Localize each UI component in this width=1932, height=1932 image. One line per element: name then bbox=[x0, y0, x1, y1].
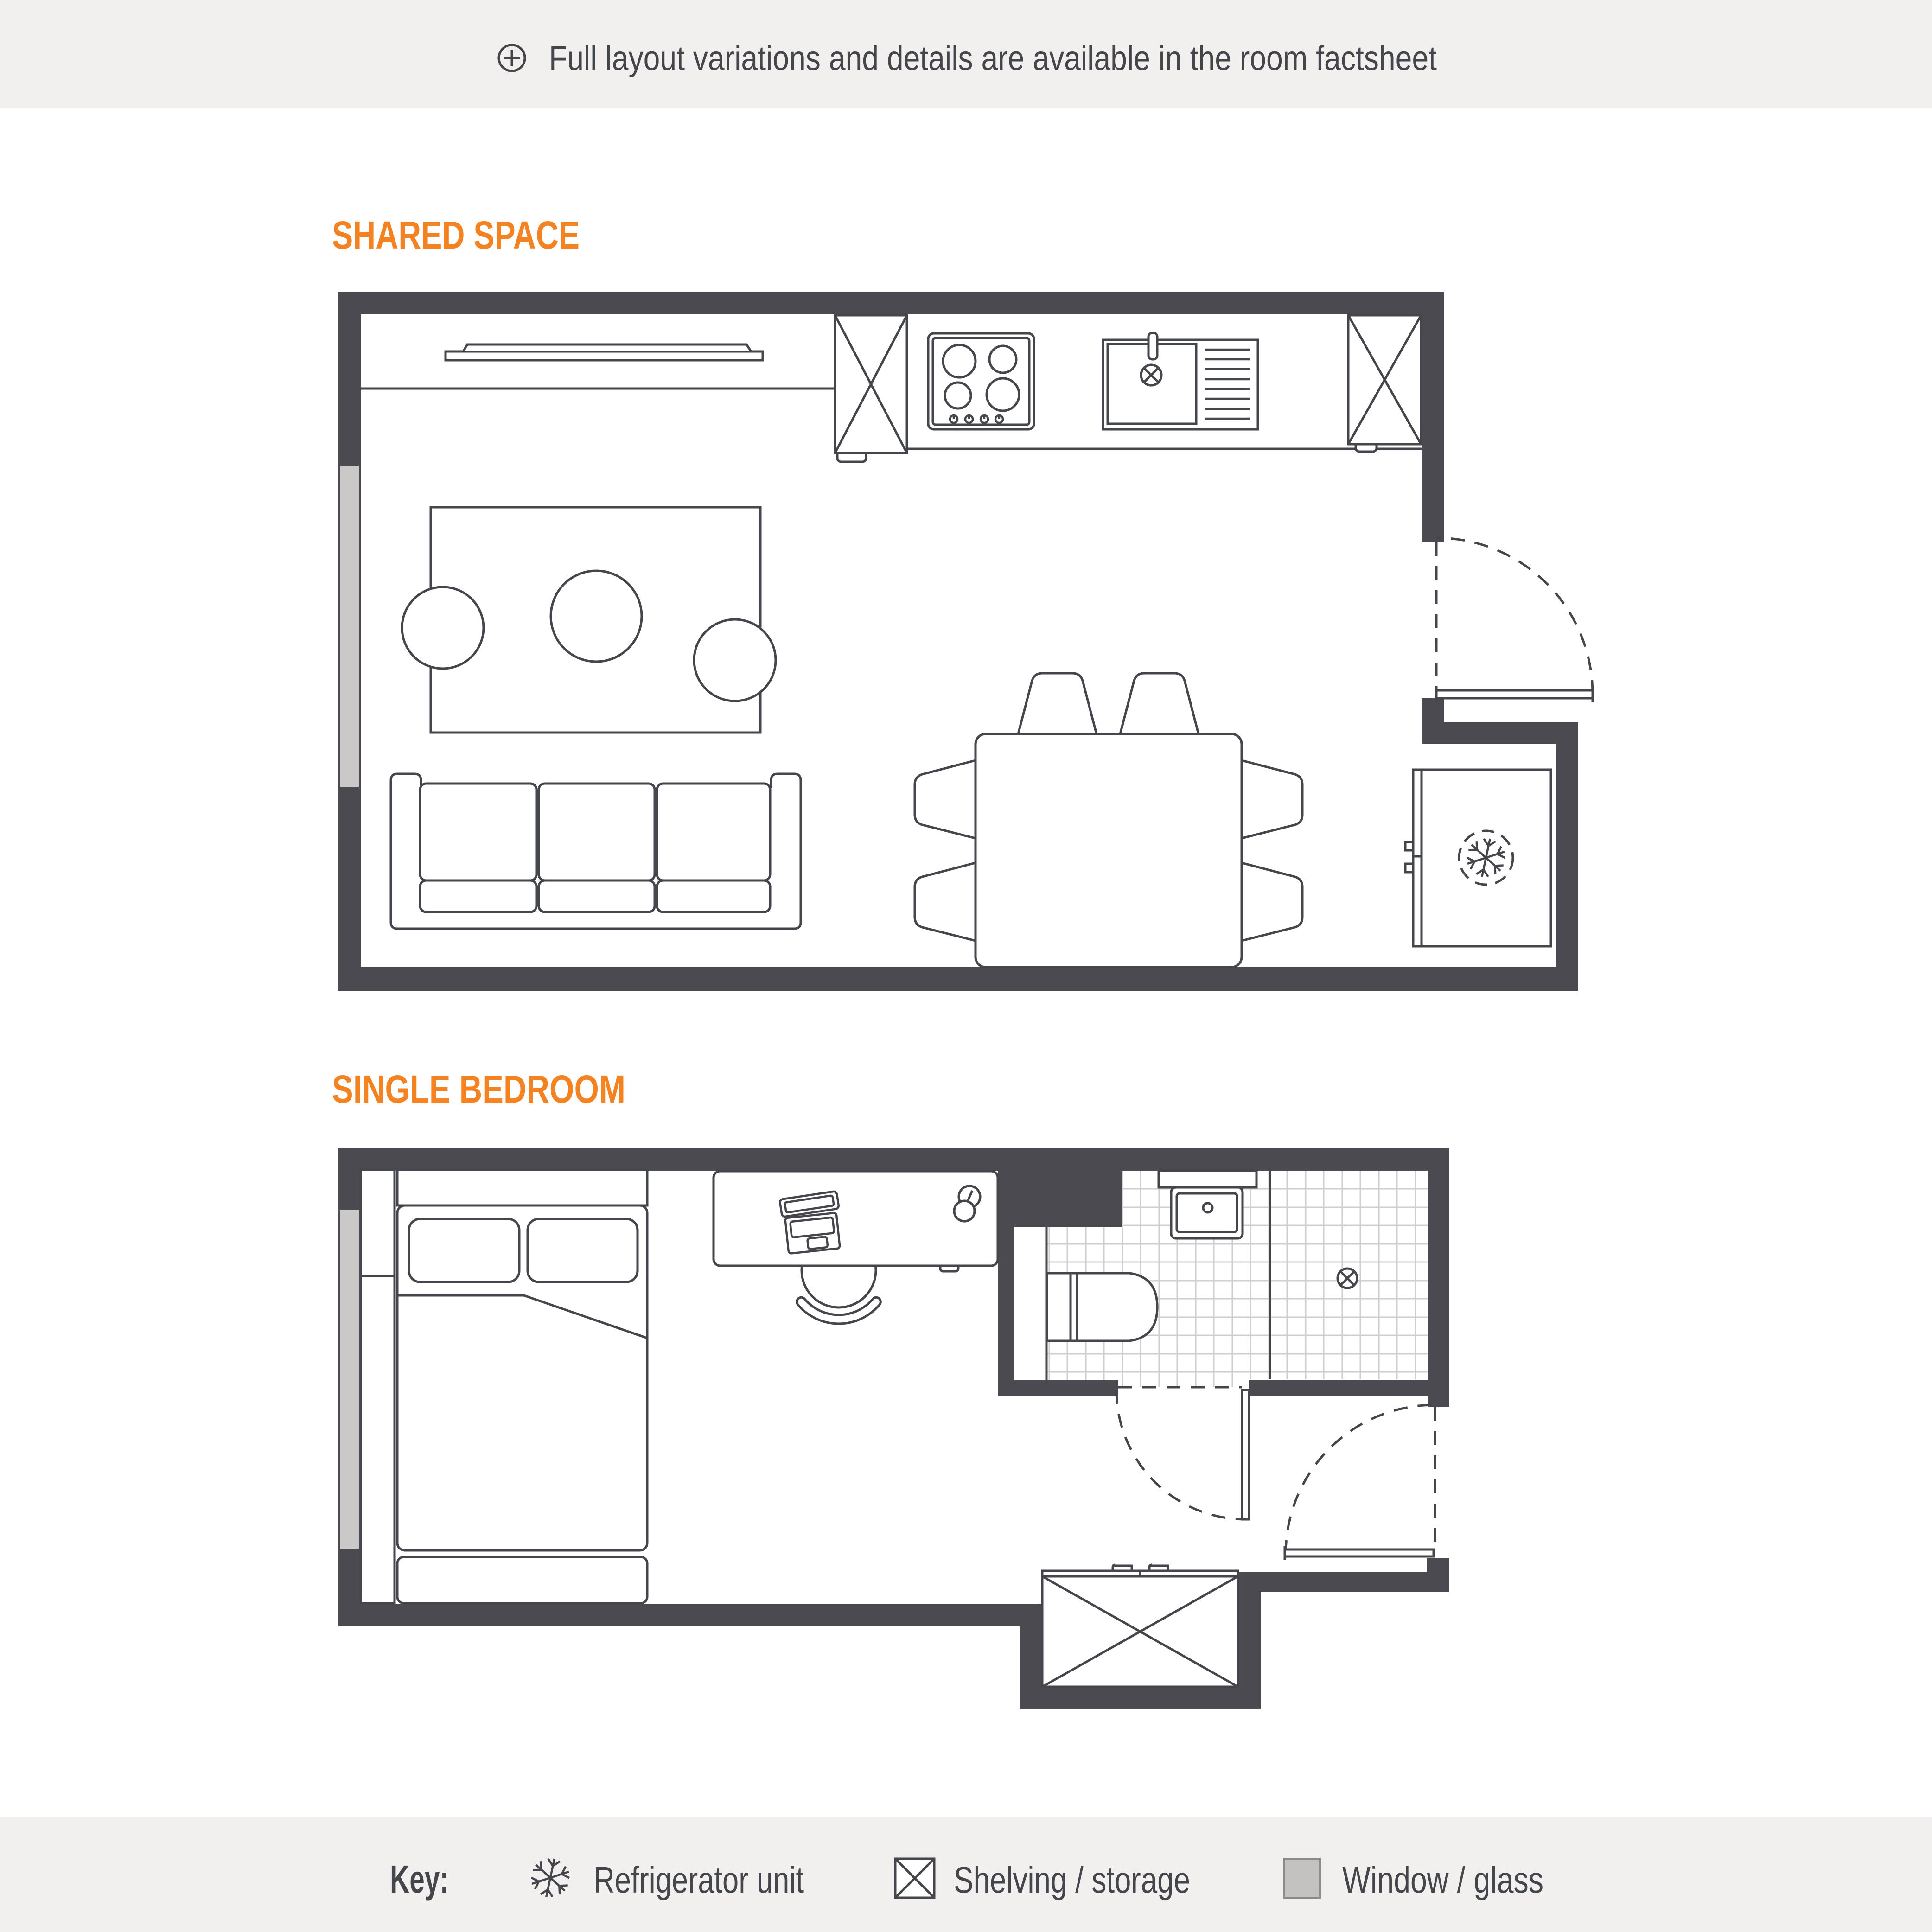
svg-text:Shelving / storage: Shelving / storage bbox=[954, 1859, 1190, 1900]
svg-text:Refrigerator unit: Refrigerator unit bbox=[593, 1859, 804, 1900]
svg-text:Full layout variations and det: Full layout variations and details are a… bbox=[549, 39, 1437, 77]
svg-text:Window / glass: Window / glass bbox=[1342, 1859, 1543, 1900]
svg-text:Key:: Key: bbox=[390, 1857, 449, 1901]
svg-text:SHARED SPACE: SHARED SPACE bbox=[332, 213, 580, 257]
svg-text:SINGLE BEDROOM: SINGLE BEDROOM bbox=[332, 1067, 625, 1111]
